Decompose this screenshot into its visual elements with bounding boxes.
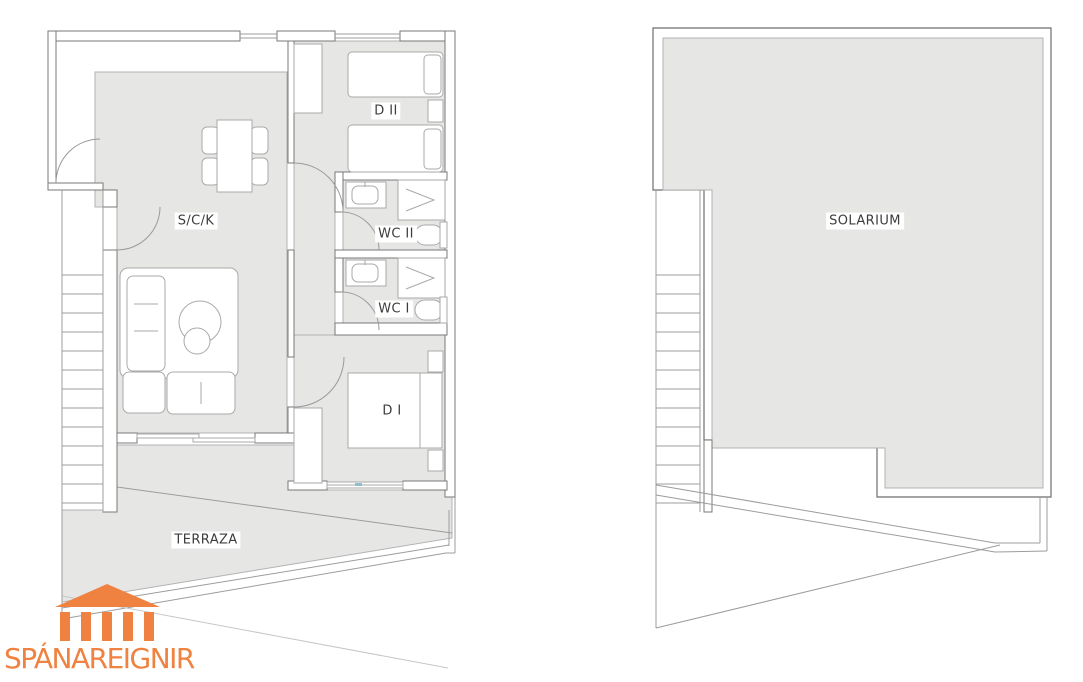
roof-edge-lines bbox=[656, 485, 1047, 628]
sofa-group bbox=[120, 268, 238, 414]
room-label-bathroom2: WC II bbox=[375, 226, 417, 243]
floor-plan-canvas: S/C/K D II WC II WC I D I TERRAZA SOLARI… bbox=[0, 0, 1083, 682]
lower-roof-wall bbox=[704, 440, 712, 512]
hall-wardrobe bbox=[294, 44, 322, 113]
roof-stairs bbox=[656, 190, 700, 628]
roof-plan bbox=[653, 28, 1051, 628]
bedroom1-wardrobe bbox=[294, 408, 322, 483]
sliding-door-panel bbox=[137, 434, 199, 438]
room-label-bathroom1: WC I bbox=[375, 301, 413, 318]
window-accent bbox=[355, 483, 362, 486]
room-label-bedroom1: D I bbox=[379, 403, 404, 420]
apartment-plan bbox=[48, 31, 455, 668]
sliding-door-panel bbox=[193, 438, 255, 442]
floor-plans-drawing bbox=[0, 0, 1083, 682]
room-label-terrace: TERRAZA bbox=[171, 532, 240, 549]
room-label-living-kitchen: S/C/K bbox=[175, 213, 218, 230]
landing-door-arc bbox=[56, 139, 100, 183]
solarium-floor bbox=[663, 38, 1043, 488]
room-label-solarium: SOLARIUM bbox=[826, 213, 904, 230]
room-label-bedroom2: D II bbox=[371, 103, 400, 120]
